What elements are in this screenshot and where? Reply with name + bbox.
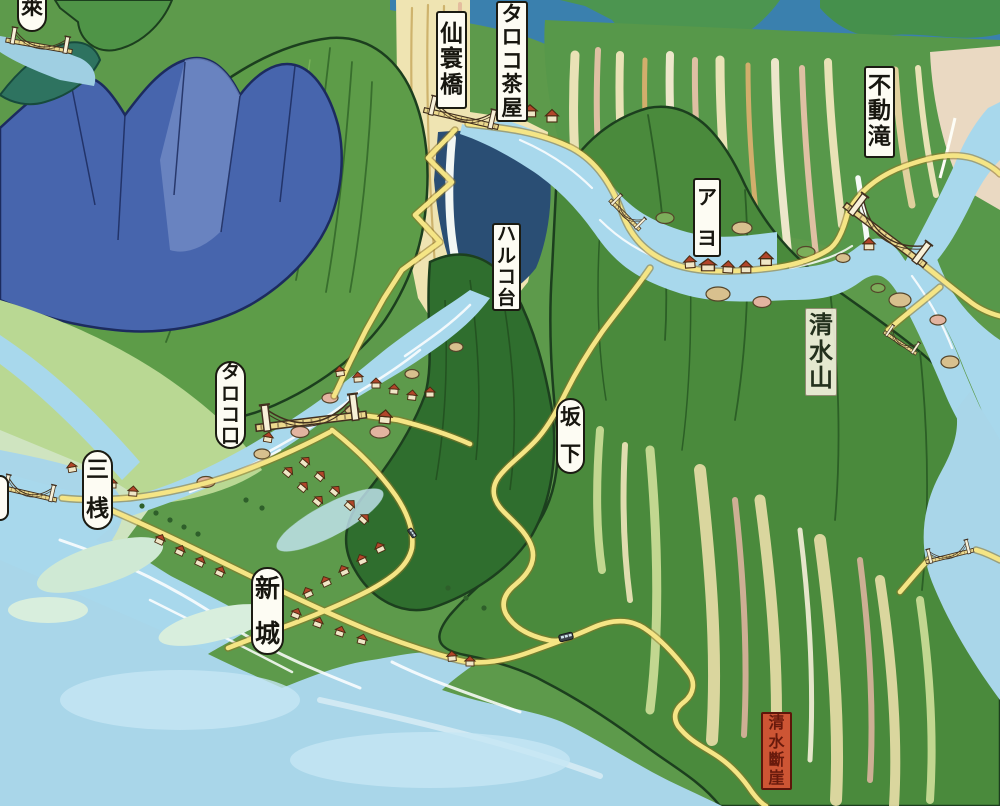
label-shimizu-yama: 清水山 [805, 308, 837, 396]
label-taroko-guchi: タロコ口 [215, 361, 246, 449]
label-ayo: アヨ [693, 178, 721, 257]
label-haruko-dai: ハルコ台 [492, 223, 521, 311]
taroko-pictorial-map: 萊仙寰橋タロコ茶屋不動滝アヨハルコ台清水山タロコ口坂下三桟新城清水斷崖 [0, 0, 1000, 806]
label-taroko-chaya: タロコ茶屋 [496, 1, 528, 122]
label-rai: 萊 [17, 0, 47, 32]
cut-off-label-fragment [0, 476, 8, 520]
label-shimizu-dangai: 清水斷崖 [761, 712, 792, 790]
label-fudo-taki: 不動滝 [864, 66, 895, 158]
label-sansan: 三桟 [82, 450, 113, 530]
label-shinjo: 新城 [251, 567, 284, 655]
label-sakashita: 坂下 [556, 398, 585, 474]
label-senkankyo: 仙寰橋 [436, 11, 467, 109]
